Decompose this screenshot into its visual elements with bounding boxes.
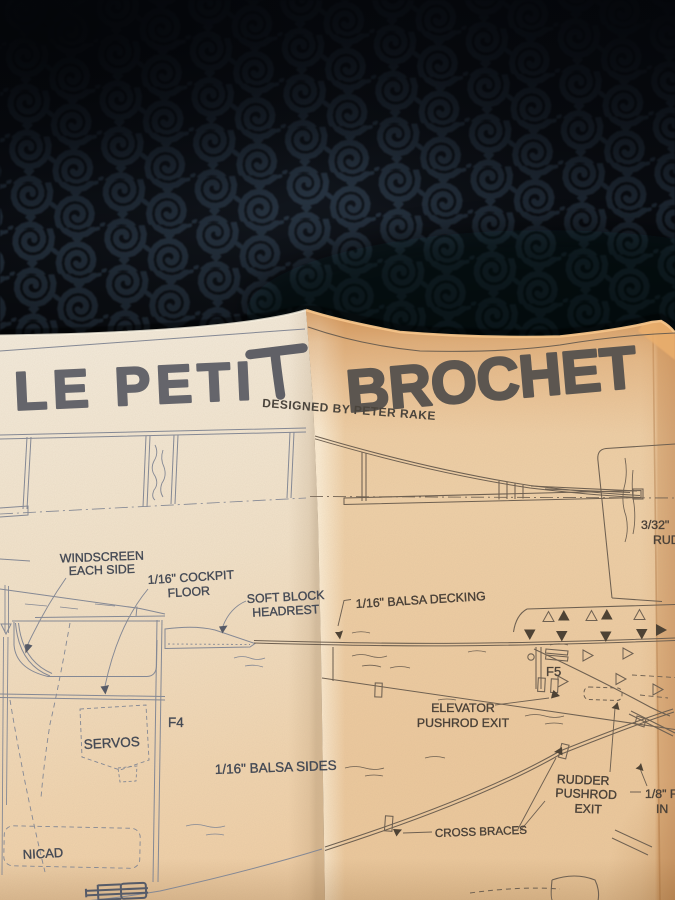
svg-text:F4: F4	[168, 715, 184, 730]
svg-text:NICAD: NICAD	[22, 845, 63, 862]
svg-text:PUSHROD: PUSHROD	[555, 786, 617, 802]
svg-text:SERVOS: SERVOS	[83, 734, 140, 752]
svg-text:ELEVATOR: ELEVATOR	[431, 701, 495, 715]
svg-text:F5: F5	[546, 664, 561, 679]
svg-text:LE PETI: LE PETI	[13, 351, 258, 422]
svg-text:RUD: RUD	[653, 533, 675, 547]
svg-text:IN: IN	[656, 802, 668, 816]
svg-text:PUSHROD EXIT: PUSHROD EXIT	[417, 716, 510, 730]
svg-text:FLOOR: FLOOR	[167, 584, 210, 601]
svg-text:EACH SIDE: EACH SIDE	[68, 562, 135, 578]
svg-text:EXIT: EXIT	[574, 802, 602, 817]
svg-text:1/8" F: 1/8" F	[645, 787, 675, 801]
svg-text:3/32": 3/32"	[641, 518, 669, 532]
